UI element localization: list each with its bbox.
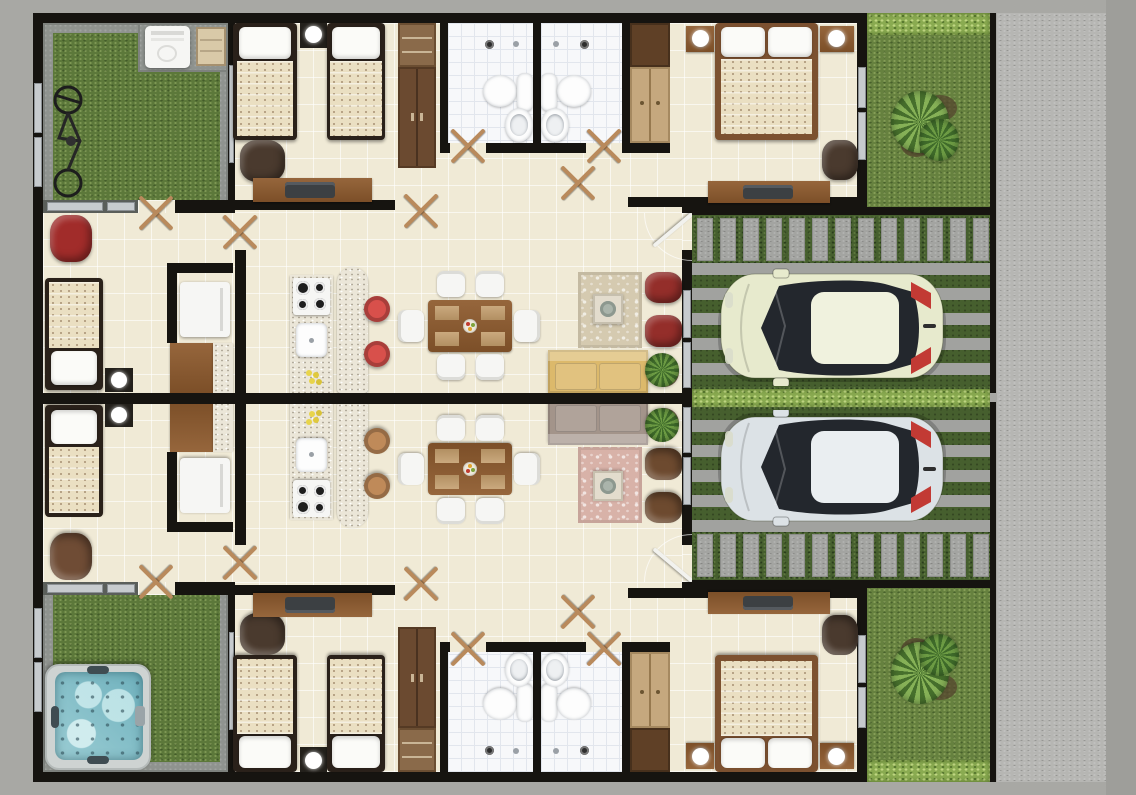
potted-plant [645, 408, 679, 442]
bathroom-south-wall [440, 642, 450, 652]
toilet-bowl [557, 688, 591, 720]
bicycle [47, 83, 89, 201]
toilet-tank [517, 684, 533, 722]
walkway-paver [881, 218, 897, 261]
nightstand-lamp [692, 30, 709, 47]
twin-bed-pillow [332, 27, 380, 59]
dining-chair [476, 415, 504, 441]
master-closet-shelf [630, 728, 670, 772]
master-bed-quilt [721, 661, 812, 736]
front-walkway [692, 532, 990, 580]
armchair [645, 315, 682, 347]
twin-bed-quilt [330, 61, 382, 136]
walkway-paver [720, 218, 736, 261]
kitchen-nook-wall [167, 452, 177, 532]
dining-chair [437, 271, 465, 297]
dining-chair [398, 453, 424, 485]
toilet-tank [517, 73, 533, 111]
driveway-divider-hedge [692, 389, 990, 407]
closet-south-wall [622, 642, 670, 652]
sofa [548, 402, 648, 445]
coffee-table [593, 294, 623, 324]
walkway-paver [720, 534, 736, 577]
desk-chair [822, 615, 858, 655]
master-pillow [768, 27, 812, 57]
living-room-window [683, 457, 691, 505]
twin-bed-quilt [237, 659, 293, 734]
kitchen-island [337, 267, 368, 393]
single-bed-quilt [49, 282, 99, 348]
patio-window [47, 584, 103, 593]
dining-chair [514, 453, 540, 485]
front-walkway [692, 215, 990, 263]
walkway-paver [697, 534, 713, 577]
party-wall [33, 393, 692, 404]
outer-left-wall [33, 402, 43, 782]
sidewalk [997, 13, 1106, 782]
walkway-paver [927, 534, 943, 577]
walkway-paver [697, 218, 713, 261]
floor-plan-render [0, 0, 1136, 795]
bathroom-sink [541, 653, 569, 687]
dining-chair [476, 271, 504, 297]
master-closet-shelf [630, 23, 670, 67]
toilet-bowl [483, 75, 517, 107]
shower-valve [513, 41, 519, 47]
patio-bedroom-wall [175, 582, 235, 595]
walkway-paver [789, 218, 805, 261]
yard-shrub [919, 634, 959, 676]
walkway-paver [973, 218, 989, 261]
nightstand-lamp [828, 748, 845, 765]
armchair [645, 492, 682, 523]
walkway-paver [950, 534, 966, 577]
laptop [285, 182, 335, 198]
patio-window [107, 584, 135, 593]
walkway-paver [766, 534, 782, 577]
bathroom-left-wall [440, 642, 448, 782]
shower-valve [553, 748, 559, 754]
kitchen-cabinet [170, 343, 213, 393]
twin-bed-quilt [330, 659, 382, 734]
living-room-window [683, 342, 691, 388]
kitchen-counter [213, 402, 233, 452]
master-closet-doors [630, 67, 670, 143]
master-pillow [721, 27, 765, 57]
nightstand-lamp [111, 407, 127, 423]
shower-valve [513, 748, 519, 754]
bar-stool [364, 473, 390, 499]
yard-fence [692, 207, 990, 215]
bathroom-south-wall [486, 642, 586, 652]
master-bed-quilt [721, 59, 812, 134]
master-closet-doors [630, 652, 670, 728]
walkway-paver [766, 218, 782, 261]
walkway-paver [835, 218, 851, 261]
shower-valve [553, 41, 559, 47]
shower-drain [485, 40, 494, 49]
bathroom-south-wall [486, 143, 586, 153]
laptop [743, 596, 793, 610]
bathroom-divider-wall [533, 13, 541, 153]
walkway-paver [858, 218, 874, 261]
wardrobe-doors [398, 67, 436, 168]
refrigerator [180, 282, 230, 337]
nightstand-lamp [692, 748, 709, 765]
walkway-paver [927, 218, 943, 261]
walkway-paver [835, 534, 851, 577]
kitchen-nook-wall [167, 263, 177, 343]
stove [293, 278, 330, 315]
walkway-paver [950, 218, 966, 261]
kitchen-cabinet [170, 402, 213, 452]
master-pillow [768, 738, 812, 768]
patio-window [107, 202, 135, 211]
car [715, 407, 950, 527]
closet-south-wall [622, 143, 670, 153]
yard-fence [692, 580, 990, 588]
bathroom-right-wall [622, 642, 630, 782]
kitchen-sink [296, 438, 327, 472]
hot-tub-control-panel [135, 706, 145, 726]
single-bed-quilt [49, 447, 99, 513]
coffee-table [593, 471, 623, 501]
bar-stool [364, 428, 390, 454]
desk-chair [240, 140, 285, 182]
bathroom-sink [505, 653, 533, 687]
patio-left-window [34, 608, 42, 658]
bathroom-sink [541, 108, 569, 142]
living-room-window [683, 290, 691, 338]
outer-left-wall [33, 13, 43, 393]
laptop [743, 185, 793, 199]
patio-bedroom-wall [175, 200, 235, 213]
dining-chair [437, 354, 465, 380]
bathroom-divider-wall [533, 642, 541, 782]
shower-drain [485, 746, 494, 755]
walkway-paver [904, 218, 920, 261]
walkway-paver [789, 534, 805, 577]
shelf-lamp [305, 752, 322, 769]
twin-bed-pillow [239, 736, 291, 768]
bar-stool [364, 341, 390, 367]
car [715, 268, 950, 388]
dining-table [428, 300, 512, 352]
walkway-paver [743, 218, 759, 261]
hot-tub-headrest [87, 666, 109, 674]
hot-tub [45, 664, 151, 770]
dining-chair [437, 498, 465, 524]
toilet-bowl [557, 75, 591, 107]
bathroom-south-wall [440, 143, 450, 153]
hot-tub-jets [55, 672, 143, 760]
wardrobe [398, 23, 436, 67]
wardrobe [398, 728, 436, 772]
outer-top-wall [33, 13, 871, 23]
hot-tub-headrest [51, 706, 59, 728]
fruit-bowl [463, 462, 477, 476]
toilet-tank [541, 684, 557, 722]
toilet-tank [541, 73, 557, 111]
patio-window [47, 202, 103, 211]
dining-chair [437, 415, 465, 441]
twin-bed-quilt [237, 61, 293, 136]
master-window [858, 67, 866, 108]
dining-chair [398, 310, 424, 342]
master-window [858, 687, 866, 728]
yard-shrub [919, 119, 959, 161]
single-bed-pillow [51, 410, 97, 444]
hot-tub-headrest [87, 756, 109, 764]
bathroom-sink [505, 108, 533, 142]
walkway-paver [973, 534, 989, 577]
patio-left-window [34, 137, 42, 187]
walkway-paver [812, 534, 828, 577]
nightstand-lamp [111, 372, 127, 388]
desk-chair [822, 140, 858, 180]
lemons [306, 419, 312, 425]
lemons [306, 370, 312, 376]
fruit-bowl [463, 319, 477, 333]
plot-edge-wall [990, 13, 996, 393]
twin-bed-pillow [239, 27, 291, 59]
bedroom-corridor-wall [235, 402, 246, 545]
refrigerator [180, 458, 230, 513]
armchair [645, 448, 682, 480]
living-room-window [683, 407, 691, 453]
plot-edge-wall [990, 402, 996, 782]
bathroom-right-wall [622, 13, 630, 153]
bar-stool [364, 296, 390, 322]
toilet-bowl [483, 688, 517, 720]
single-bed-pillow [51, 351, 97, 385]
master-pillow [721, 738, 765, 768]
walkway-paver [881, 534, 897, 577]
kitchen-counter [213, 343, 233, 393]
nightstand-lamp [828, 30, 845, 47]
accent-chair [50, 215, 92, 262]
walkway-paver [904, 534, 920, 577]
patio-left-window [34, 662, 42, 712]
sofa [548, 350, 648, 393]
walkway-paver [743, 534, 759, 577]
dining-chair [476, 354, 504, 380]
outer-top-wall [33, 772, 871, 782]
potted-plant [645, 353, 679, 387]
background-right-strip [1106, 0, 1136, 795]
bedroom-corridor-wall [235, 250, 246, 393]
desk-chair [240, 613, 285, 655]
twin-bed-pillow [332, 736, 380, 768]
kitchen-sink [296, 323, 327, 357]
shelf-lamp [305, 26, 322, 43]
unit-b [33, 402, 997, 782]
dining-chair [514, 310, 540, 342]
laptop [285, 597, 335, 613]
walkway-paver [812, 218, 828, 261]
master-right-wall [857, 13, 867, 207]
washing-machine [145, 26, 190, 68]
wardrobe-doors [398, 627, 436, 728]
dining-table [428, 443, 512, 495]
dining-chair [476, 498, 504, 524]
yard-hedge [867, 13, 990, 35]
master-window [858, 112, 866, 160]
patio-left-window [34, 83, 42, 133]
accent-chair [50, 533, 92, 580]
storage-shelf [196, 27, 226, 66]
yard-hedge [867, 760, 990, 782]
kitchen-island [337, 402, 368, 528]
unit-a [33, 13, 997, 393]
master-right-wall [857, 588, 867, 782]
walkway-paver [858, 534, 874, 577]
master-window [858, 635, 866, 683]
shower-drain [580, 746, 589, 755]
bathroom-left-wall [440, 13, 448, 153]
stove [293, 480, 330, 517]
shower-drain [580, 40, 589, 49]
armchair [645, 272, 682, 303]
